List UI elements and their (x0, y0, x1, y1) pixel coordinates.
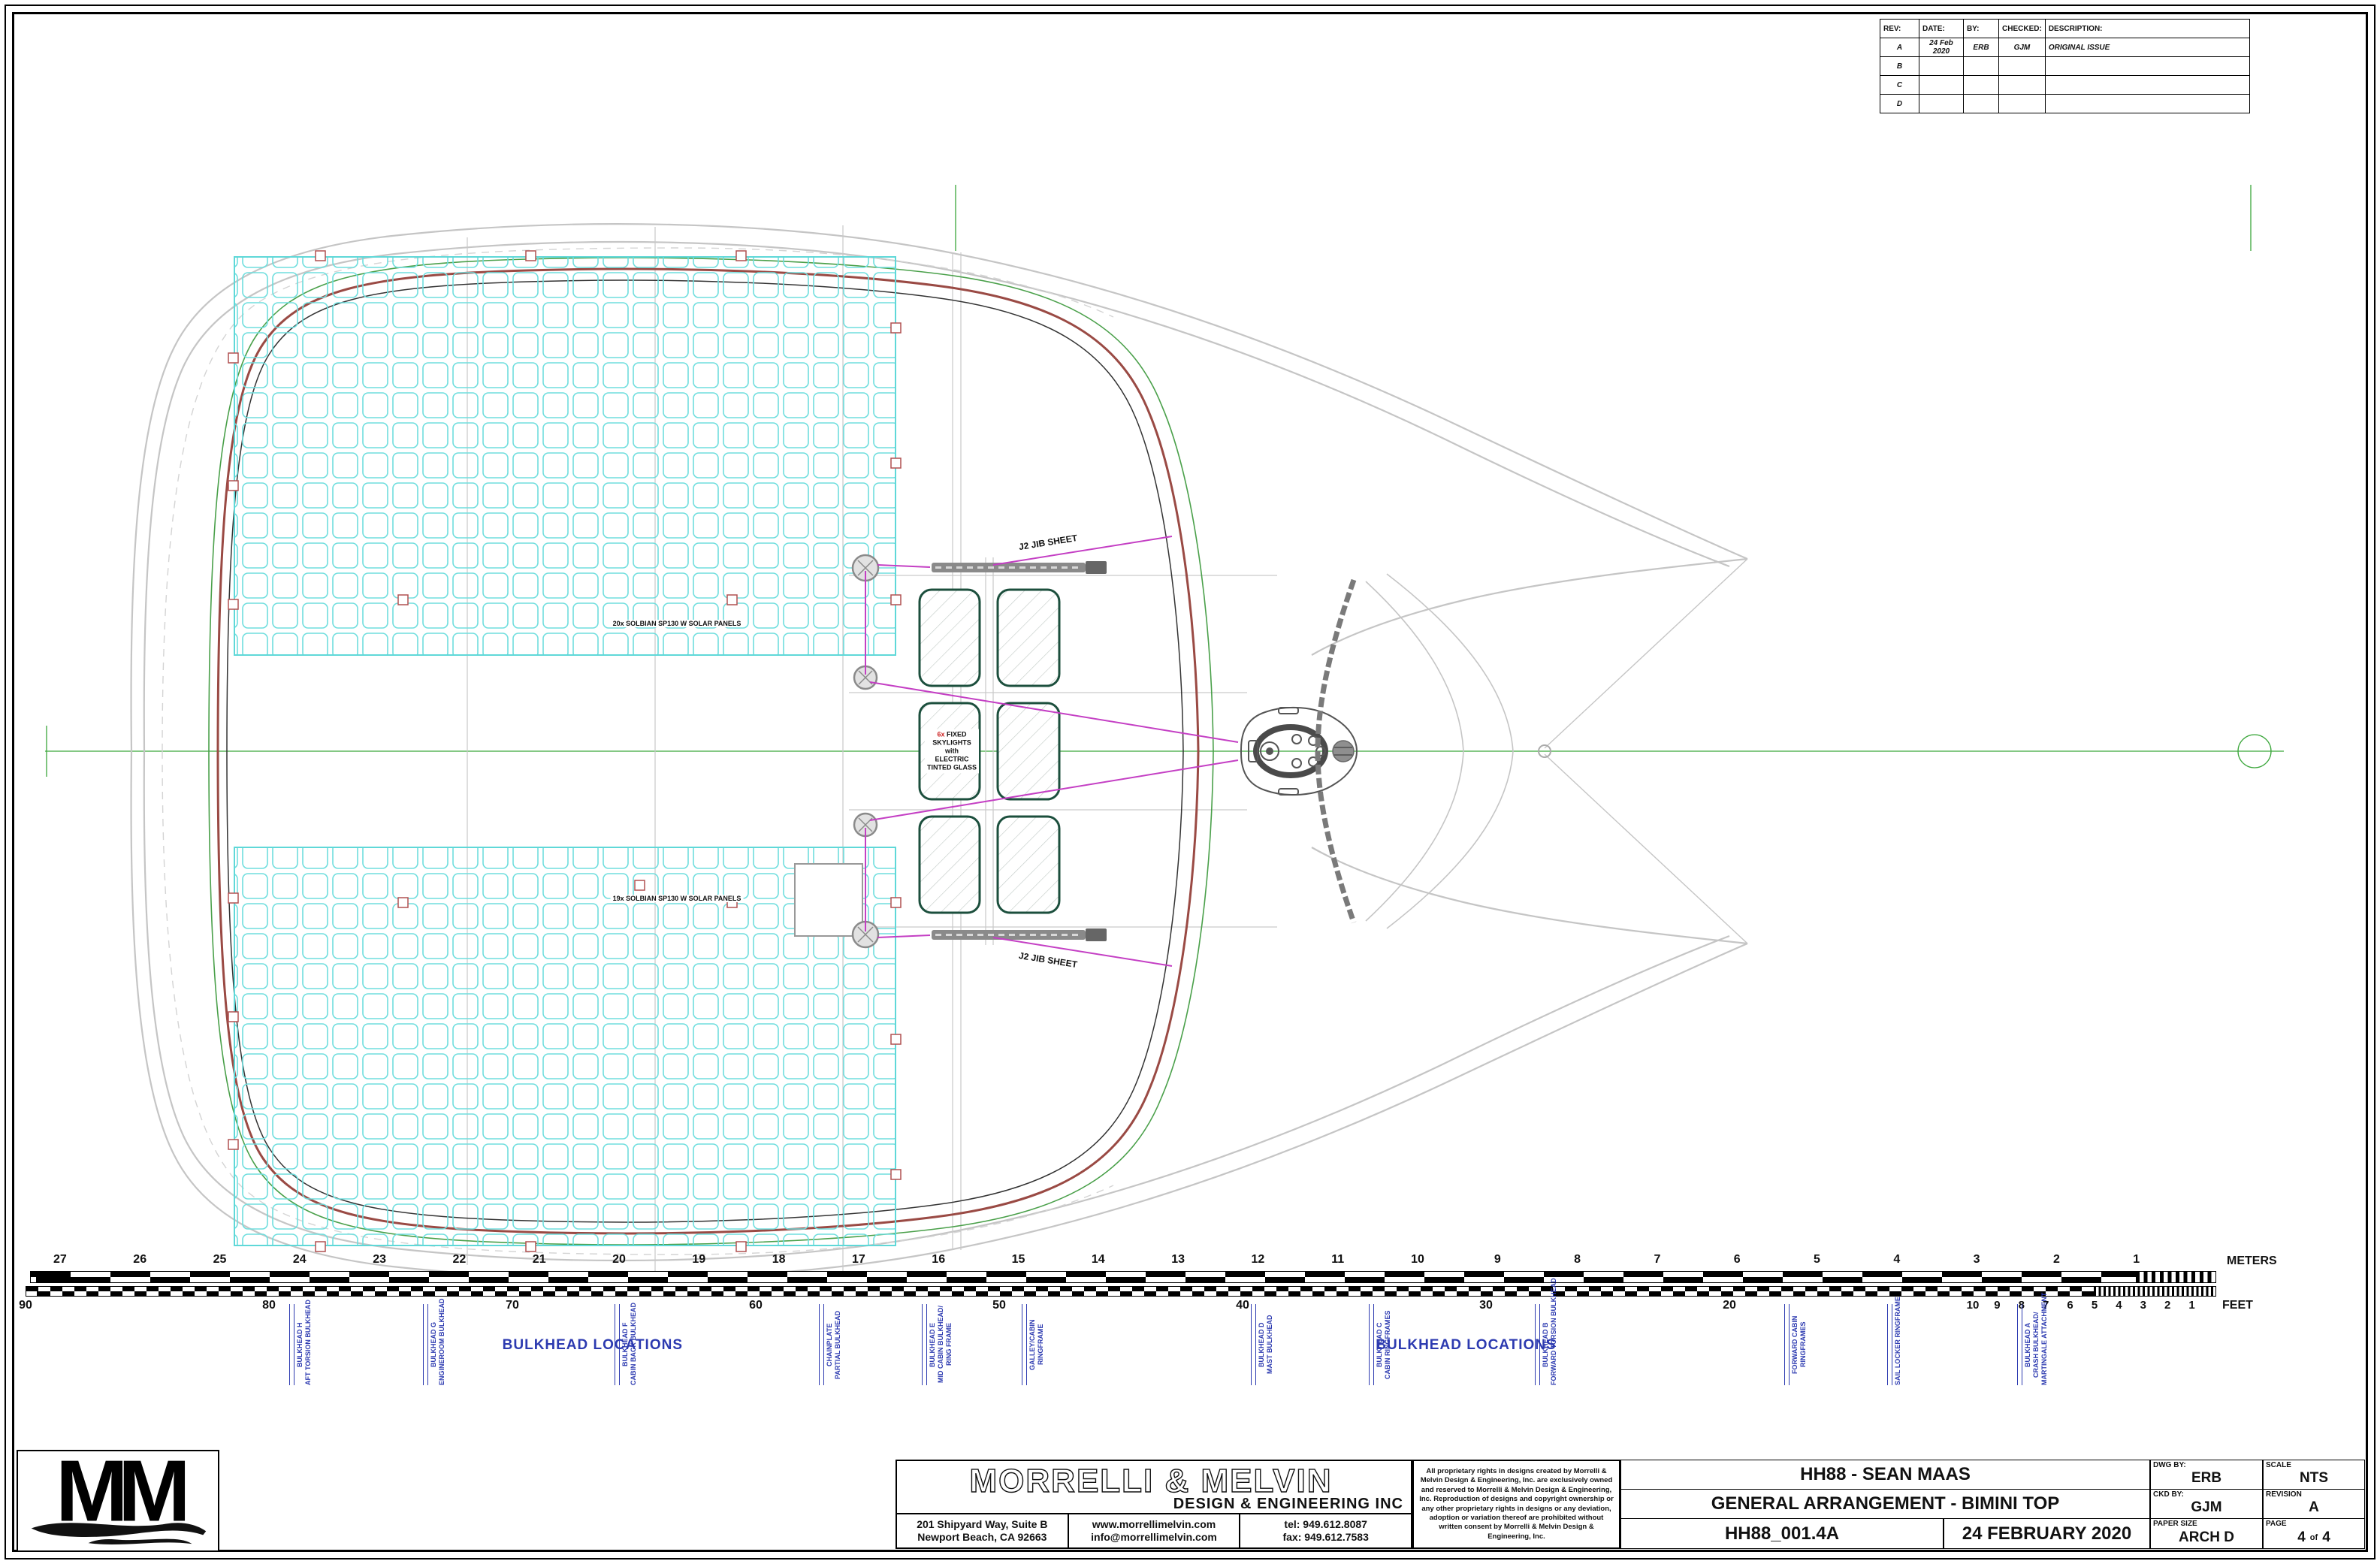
scale-tick: 19 (692, 1253, 705, 1267)
skylight-count: 6x (937, 731, 944, 738)
skylight (920, 817, 980, 913)
solar-panels-bottom-label: 19x SOLBIAN SP130 W SOLAR PANELS (611, 895, 744, 902)
revision-header-row: REV: DATE: BY: CHECKED: DESCRIPTION: (1880, 20, 2250, 38)
scale-tick: 4 (2116, 1299, 2122, 1312)
scale-tick: 25 (213, 1253, 227, 1267)
scale-tick: 30 (1479, 1299, 1493, 1312)
dr-date: 24 FEBRUARY 2020 (1944, 1519, 2149, 1548)
scale-tick: 20 (612, 1253, 626, 1267)
scale-tick: 70 (506, 1299, 519, 1312)
feet-unit-label: FEET (2222, 1299, 2253, 1312)
bulkhead-label: FORWARD CABINRINGFRAMES (1791, 1304, 1808, 1385)
bulkhead-label: BULKHEAD DMAST BULKHEAD (1258, 1304, 1274, 1385)
drawing-title: GENERAL ARRANGEMENT - BIMINI TOP (1621, 1490, 2149, 1518)
scale-tick: 40 (1236, 1299, 1249, 1312)
bulkhead-tick-lines (1022, 1304, 1027, 1385)
bulkhead-label: CHAINPLATEPARTIAL BULKHEAD (826, 1304, 842, 1385)
dwg-by-value: ERB (2151, 1468, 2262, 1489)
scale-tick: 6 (2067, 1299, 2073, 1312)
title-block-grid: HH88 - SEAN MAAS DWG BY: ERB SCALE NTS G… (1620, 1460, 2365, 1549)
scale-tick: 2 (2164, 1299, 2170, 1312)
drawing-number: HH88_001.4A (1621, 1519, 1943, 1548)
scale-tick: 10 (1411, 1253, 1424, 1267)
scale-tick: 24 (293, 1253, 307, 1267)
company-website-link[interactable]: www.morrellimelvin.com (1069, 1518, 1240, 1531)
bulkhead-locations-label-right: BULKHEAD LOCATIONS (1376, 1337, 1556, 1354)
bulkhead-tick-lines (922, 1304, 927, 1385)
revision-row: A24 Feb 2020ERBGJMORIGINAL ISSUE (1880, 38, 2250, 57)
legal-notice-box: All proprietary rights in designs create… (1412, 1460, 1620, 1549)
scale-tick: 14 (1092, 1253, 1105, 1267)
revision-row: D (1880, 95, 2250, 113)
bulkhead-tick-lines (423, 1304, 428, 1385)
deck-hatch (795, 864, 862, 936)
drawing-sheet: 20x SOLBIAN SP130 W SOLAR PANELS 19x SOL… (0, 0, 2380, 1564)
bulkhead-tick-lines (1369, 1304, 1374, 1385)
ckd-by-value: GJM (2151, 1497, 2262, 1518)
bulkhead-tick-lines (819, 1304, 824, 1385)
dwg-by-cell: DWG BY: ERB (2150, 1460, 2263, 1490)
deck-plan-drawing (0, 0, 2380, 1564)
scale-tick: 18 (772, 1253, 786, 1267)
meters-scale-bar (30, 1271, 2216, 1283)
scale-tick: 22 (452, 1253, 466, 1267)
bulkhead-label: BULKHEAD ACRASH BULKHEAD/MARTINGALE ATTA… (2024, 1304, 2049, 1385)
scale-tick: 80 (262, 1299, 276, 1312)
company-address: 201 Shipyard Way, Suite B Newport Beach,… (897, 1513, 1068, 1547)
bulkhead-label: GALLEY/CABINRINGFRAME (1028, 1304, 1045, 1385)
scale-tick: 10 (1967, 1299, 1980, 1312)
scale-tick: 17 (852, 1253, 865, 1267)
skylight (998, 590, 1059, 686)
scale-tick: 12 (1251, 1253, 1264, 1267)
scale-tick: 6 (1734, 1253, 1741, 1267)
revision-value: A (2264, 1497, 2364, 1518)
skylight (998, 817, 1059, 913)
drawing-title-cell: GENERAL ARRANGEMENT - BIMINI TOP (1620, 1489, 2150, 1519)
scale-tick: 1 (2188, 1299, 2194, 1312)
ckd-by-cell: CKD BY: GJM (2150, 1489, 2263, 1519)
paper-size-value: ARCH D (2151, 1526, 2262, 1548)
drawing-number-cell: HH88_001.4A (1620, 1518, 1944, 1549)
scale-cell: SCALE NTS (2263, 1460, 2365, 1490)
scale-tick: 9 (1494, 1253, 1501, 1267)
company-title-box: MORRELLI & MELVIN DESIGN & ENGINEERING I… (896, 1460, 1412, 1549)
scale-tick: 1 (2133, 1253, 2140, 1267)
skylight (998, 703, 1059, 799)
scale-tick: 50 (992, 1299, 1006, 1312)
scale-tick: 2 (2053, 1253, 2060, 1267)
bulkhead-label: BULKHEAD GENGINEROOM BULKHEAD (430, 1304, 446, 1385)
scale-tick: 4 (1893, 1253, 1900, 1267)
revision-row: C (1880, 76, 2250, 95)
scale-tick: 90 (19, 1299, 32, 1312)
meters-unit-label: METERS (2227, 1255, 2277, 1268)
project-name-cell: HH88 - SEAN MAAS (1620, 1460, 2150, 1490)
scale-value: NTS (2264, 1468, 2364, 1489)
scale-tick: 20 (1723, 1299, 1736, 1312)
scale-tick: 11 (1331, 1253, 1344, 1267)
company-email-link[interactable]: info@morrellimelvin.com (1069, 1531, 1240, 1544)
scale-tick: 26 (133, 1253, 146, 1267)
page-cell: PAGE 4 of 4 (2263, 1518, 2365, 1549)
scale-tick: 7 (1654, 1253, 1660, 1267)
bulkhead-tick-lines (2017, 1304, 2022, 1385)
company-name: MORRELLI & MELVIN (897, 1463, 1405, 1500)
by-header: BY: (1963, 20, 1998, 38)
scale-tick: 9 (1994, 1299, 2000, 1312)
date-header: DATE: (1919, 20, 1963, 38)
scale-tick: 13 (1171, 1253, 1185, 1267)
paper-size-cell: PAPER SIZE ARCH D (2150, 1518, 2263, 1549)
feet-scale-bar (26, 1286, 2216, 1297)
description-header: DESCRIPTION: (2045, 20, 2249, 38)
company-web-email: www.morrellimelvin.com info@morrellimelv… (1068, 1513, 1240, 1547)
project-name: HH88 - SEAN MAAS (1621, 1460, 2149, 1489)
date-cell: 24 FEBRUARY 2020 (1944, 1518, 2150, 1549)
bulkhead-label: BULKHEAD HAFT TORSION BULKHEAD (296, 1304, 313, 1385)
revision-cell: REVISION A (2263, 1489, 2365, 1519)
scale-tick: 5 (1814, 1253, 1820, 1267)
page-value: 4 of 4 (2264, 1526, 2364, 1548)
solar-array-top (234, 257, 896, 655)
company-logo-box: MM (17, 1450, 219, 1552)
revision-row: B (1880, 57, 2250, 76)
scale-tick: 3 (2140, 1299, 2146, 1312)
scale-tick: 8 (1574, 1253, 1581, 1267)
bulkhead-tick-lines (1784, 1304, 1790, 1385)
company-phone: tel: 949.612.8087 fax: 949.612.7583 (1239, 1513, 1411, 1547)
bulkhead-locations-label-left: BULKHEAD LOCATIONS (503, 1337, 683, 1354)
scale-tick: 3 (1974, 1253, 1980, 1267)
bulkhead-label: BULKHEAD EMID CABIN BULKHEAD/RING FRAME (929, 1304, 953, 1385)
bulkhead-tick-lines (1887, 1304, 1892, 1385)
bulkhead-label: SAIL LOCKER RINGFRAME (1894, 1304, 1902, 1385)
bulkhead-tick-lines (289, 1304, 294, 1385)
scale-tick: 5 (2092, 1299, 2098, 1312)
scale-tick: 23 (373, 1253, 386, 1267)
scale-tick: 27 (53, 1253, 67, 1267)
solar-array-bottom (234, 847, 896, 1245)
scale-tick: 60 (749, 1299, 763, 1312)
scale-tick: 21 (533, 1253, 546, 1267)
skylight (920, 590, 980, 686)
rev-header: REV: (1880, 20, 1919, 38)
scale-tick: 15 (1012, 1253, 1025, 1267)
legal-notice: All proprietary rights in designs create… (1414, 1467, 1619, 1541)
scale-tick: 16 (932, 1253, 945, 1267)
company-subtitle: DESIGN & ENGINEERING INC (1173, 1496, 1403, 1513)
bulkhead-tick-lines (1251, 1304, 1256, 1385)
skylights-label: 6x FIXED SKYLIGHTS with ELECTRIC TINTED … (925, 729, 979, 774)
checked-header: CHECKED: (1999, 20, 2046, 38)
revision-table: REV: DATE: BY: CHECKED: DESCRIPTION: A24… (1880, 19, 2250, 113)
mm-logo-icon: MM (18, 1451, 218, 1552)
masthead-ball (1333, 741, 1354, 762)
solar-panels-top-label: 20x SOLBIAN SP130 W SOLAR PANELS (611, 620, 744, 627)
